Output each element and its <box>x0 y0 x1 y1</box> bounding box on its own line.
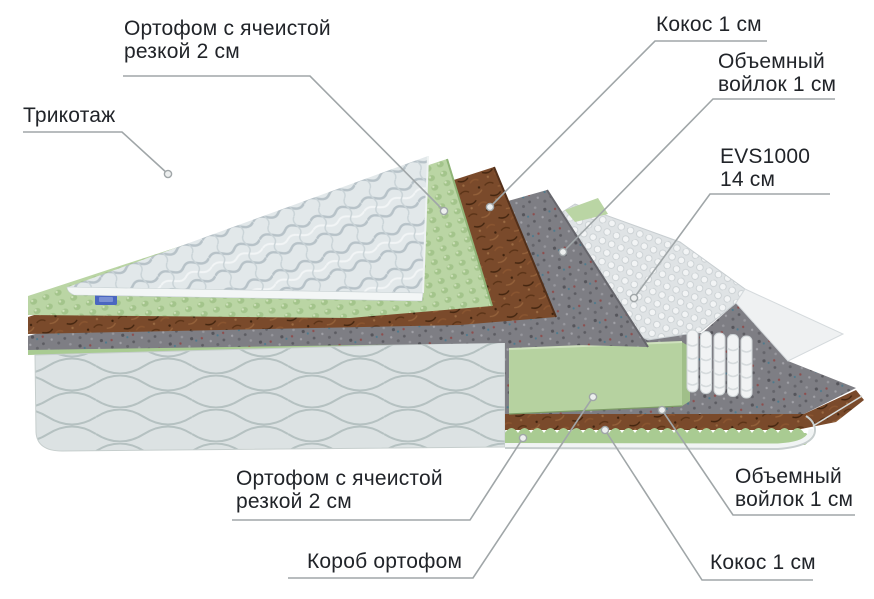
label-coir-top: Кокос 1 см <box>656 13 762 36</box>
cutaway-foam-box-slab <box>509 342 690 414</box>
label-egg-foam-bottom: Ортофом с ячеистой резкой 2 см <box>236 467 443 513</box>
label-text: Ортофом с ячеистой <box>236 467 443 490</box>
label-text: Ортофом с ячеистой <box>124 17 331 40</box>
label-knit-cover: Трикотаж <box>23 104 115 127</box>
label-text: Объемный <box>735 465 853 488</box>
label-text: Кокос 1 см <box>710 551 816 574</box>
label-foam-box: Короб ортофом <box>307 550 462 573</box>
label-text: резкой 2 см <box>236 490 443 513</box>
label-felt-top: Объемный войлок 1 см <box>718 50 836 96</box>
label-text: войлок 1 см <box>718 73 836 96</box>
label-text: EVS1000 <box>720 145 810 168</box>
base-front-face <box>35 342 505 451</box>
label-felt-bottom: Объемный войлок 1 см <box>735 465 853 511</box>
label-text: резкой 2 см <box>124 40 331 63</box>
label-text: Трикотаж <box>23 104 115 127</box>
label-coir-bottom: Кокос 1 см <box>710 551 816 574</box>
diagram-canvas: Трикотаж Ортофом с ячеистой резкой 2 см … <box>0 0 874 599</box>
label-text: войлок 1 см <box>735 488 853 511</box>
label-egg-foam-top: Ортофом с ячеистой резкой 2 см <box>124 17 331 63</box>
label-text: 14 см <box>720 168 810 191</box>
cutaway-spring-columns <box>687 330 752 398</box>
label-text: Короб ортофом <box>307 550 462 573</box>
label-spring-block: EVS1000 14 см <box>720 145 810 191</box>
layer-knit-cover <box>68 156 428 295</box>
label-text: Объемный <box>718 50 836 73</box>
label-text: Кокос 1 см <box>656 13 762 36</box>
